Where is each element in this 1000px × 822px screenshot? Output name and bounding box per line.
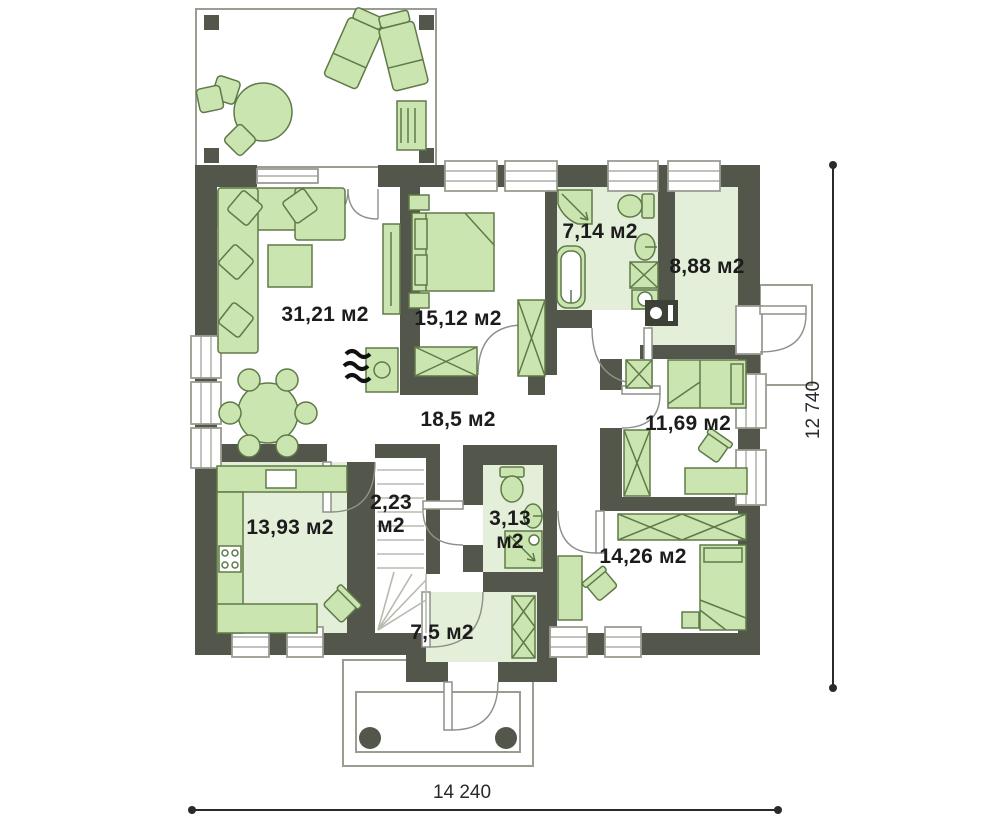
room-label-bedroom1: 15,12 м2: [414, 307, 501, 331]
nightstand: [409, 195, 429, 210]
bathtub: [557, 246, 585, 308]
terrace-post: [204, 15, 219, 30]
nightstand: [682, 612, 699, 628]
wardrobe: [626, 360, 652, 388]
window: [191, 336, 221, 378]
window: [608, 161, 658, 191]
wardrobe: [518, 300, 545, 376]
floor-plan: 31,21 м2 15,12 м2 7,14 м2 8,88 м2 18,5 м…: [0, 0, 1000, 822]
room-label-kitchen: 13,93 м2: [246, 516, 333, 540]
bedroom3-door: [558, 511, 604, 553]
single-bed: [700, 545, 746, 630]
room-label-hall: 18,5 м2: [420, 408, 495, 432]
room-label-living: 31,21 м2: [281, 303, 368, 327]
side-landing: [760, 285, 812, 385]
dresser: [415, 347, 477, 376]
window: [191, 382, 221, 424]
room-label-vestibule: 7,5 м2: [410, 621, 473, 645]
bedroom3-furniture: [558, 514, 746, 630]
porch-column: [359, 727, 381, 749]
fireplace: [344, 348, 398, 392]
nightstand: [409, 293, 429, 308]
coffee-table: [268, 245, 312, 287]
wardrobe: [618, 514, 746, 540]
wardrobe: [624, 430, 650, 496]
terrace-post: [204, 148, 219, 163]
dimension-width: [188, 806, 782, 814]
single-bed: [668, 360, 746, 408]
desk: [685, 468, 747, 494]
window: [191, 428, 221, 468]
room-label-utility: 8,88 м2: [669, 255, 744, 279]
chair: [582, 566, 620, 603]
washing-machine: [630, 262, 658, 288]
room-label-bedroom3: 14,26 м2: [599, 545, 686, 569]
window: [605, 627, 641, 657]
terrace-bench: [397, 101, 426, 150]
desk: [558, 556, 582, 620]
wardrobe: [512, 596, 535, 658]
dimension-width-label: 14 240: [433, 782, 491, 804]
floor-plan-drawing: [0, 0, 1000, 822]
bedroom1-furniture: [409, 195, 545, 376]
boiler: [645, 300, 678, 326]
porch-column: [495, 727, 517, 749]
kitchen-sink: [266, 470, 296, 488]
room-label-wc: 3,13 м2: [481, 507, 539, 553]
terrace-chair: [196, 85, 224, 113]
terrace: [196, 6, 436, 167]
tv-unit: [383, 224, 400, 314]
double-bed: [412, 213, 494, 291]
room-label-bathroom: 7,14 м2: [562, 220, 637, 244]
window: [445, 161, 497, 191]
toilet: [500, 467, 524, 502]
window: [505, 161, 557, 191]
room-label-bedroom2: 11,69 м2: [645, 412, 731, 436]
window: [668, 161, 720, 191]
dining-table: [219, 369, 317, 457]
kitchen-counter: [217, 604, 317, 633]
window: [550, 627, 587, 657]
dimension-height-label: 12 740: [803, 381, 825, 439]
room-label-pantry: 2,23 м2: [362, 491, 420, 537]
stove: [219, 546, 241, 572]
toilet: [618, 194, 654, 218]
vestibule-furniture: [512, 596, 535, 658]
terrace-post: [419, 15, 434, 30]
dimension-height: [829, 161, 837, 692]
